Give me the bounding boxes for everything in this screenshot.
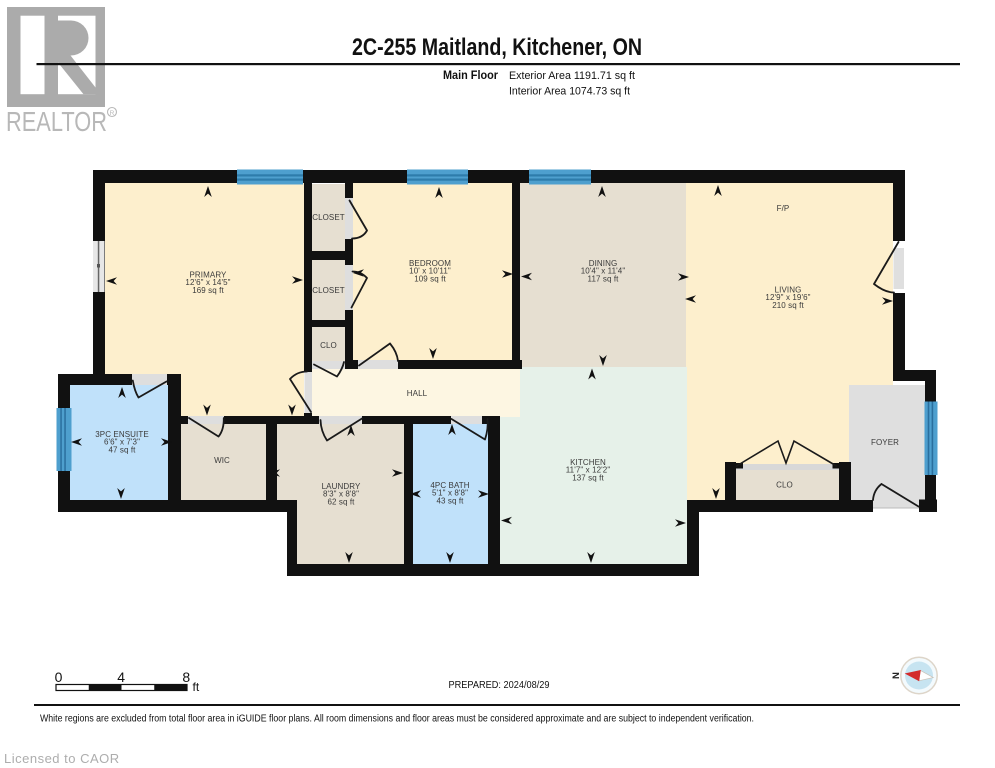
svg-text:PREPARED: 2024/08/29: PREPARED: 2024/08/29 xyxy=(449,679,550,691)
svg-text:117 sq ft: 117 sq ft xyxy=(588,274,620,283)
svg-text:FOYER: FOYER xyxy=(871,438,899,447)
svg-text:2C-255 Maitland, Kitchener, ON: 2C-255 Maitland, Kitchener, ON xyxy=(352,34,642,61)
svg-text:REALTOR: REALTOR xyxy=(6,106,107,137)
svg-text:4: 4 xyxy=(117,669,125,685)
svg-text:White regions are excluded fro: White regions are excluded from total fl… xyxy=(40,714,754,725)
svg-text:F/P: F/P xyxy=(777,204,790,213)
svg-text:CLO: CLO xyxy=(776,481,793,490)
svg-text:CLOSET: CLOSET xyxy=(312,286,345,295)
svg-text:CLOSET: CLOSET xyxy=(312,213,345,222)
svg-text:HALL: HALL xyxy=(407,389,428,398)
svg-text:N: N xyxy=(891,672,902,679)
svg-text:Interior Area 1074.73 sq ft: Interior Area 1074.73 sq ft xyxy=(509,86,630,98)
svg-text:CLO: CLO xyxy=(320,341,337,350)
svg-text:109 sq ft: 109 sq ft xyxy=(414,274,446,283)
svg-text:210 sq ft: 210 sq ft xyxy=(772,301,804,310)
svg-text:169 sq ft: 169 sq ft xyxy=(192,286,224,295)
svg-text:Main Floor: Main Floor xyxy=(443,70,498,82)
svg-text:R: R xyxy=(110,110,115,117)
svg-text:Exterior Area 1191.71 sq ft: Exterior Area 1191.71 sq ft xyxy=(509,70,635,82)
svg-text:0: 0 xyxy=(55,669,63,685)
svg-text:WIC: WIC xyxy=(214,456,230,465)
svg-text:43 sq ft: 43 sq ft xyxy=(436,496,464,505)
svg-text:ft: ft xyxy=(193,680,200,694)
svg-text:Licensed to CAOR: Licensed to CAOR xyxy=(4,751,120,766)
svg-text:62 sq ft: 62 sq ft xyxy=(327,497,355,506)
svg-text:47 sq ft: 47 sq ft xyxy=(108,445,136,454)
svg-text:8: 8 xyxy=(182,669,190,685)
svg-text:137 sq ft: 137 sq ft xyxy=(572,473,604,482)
